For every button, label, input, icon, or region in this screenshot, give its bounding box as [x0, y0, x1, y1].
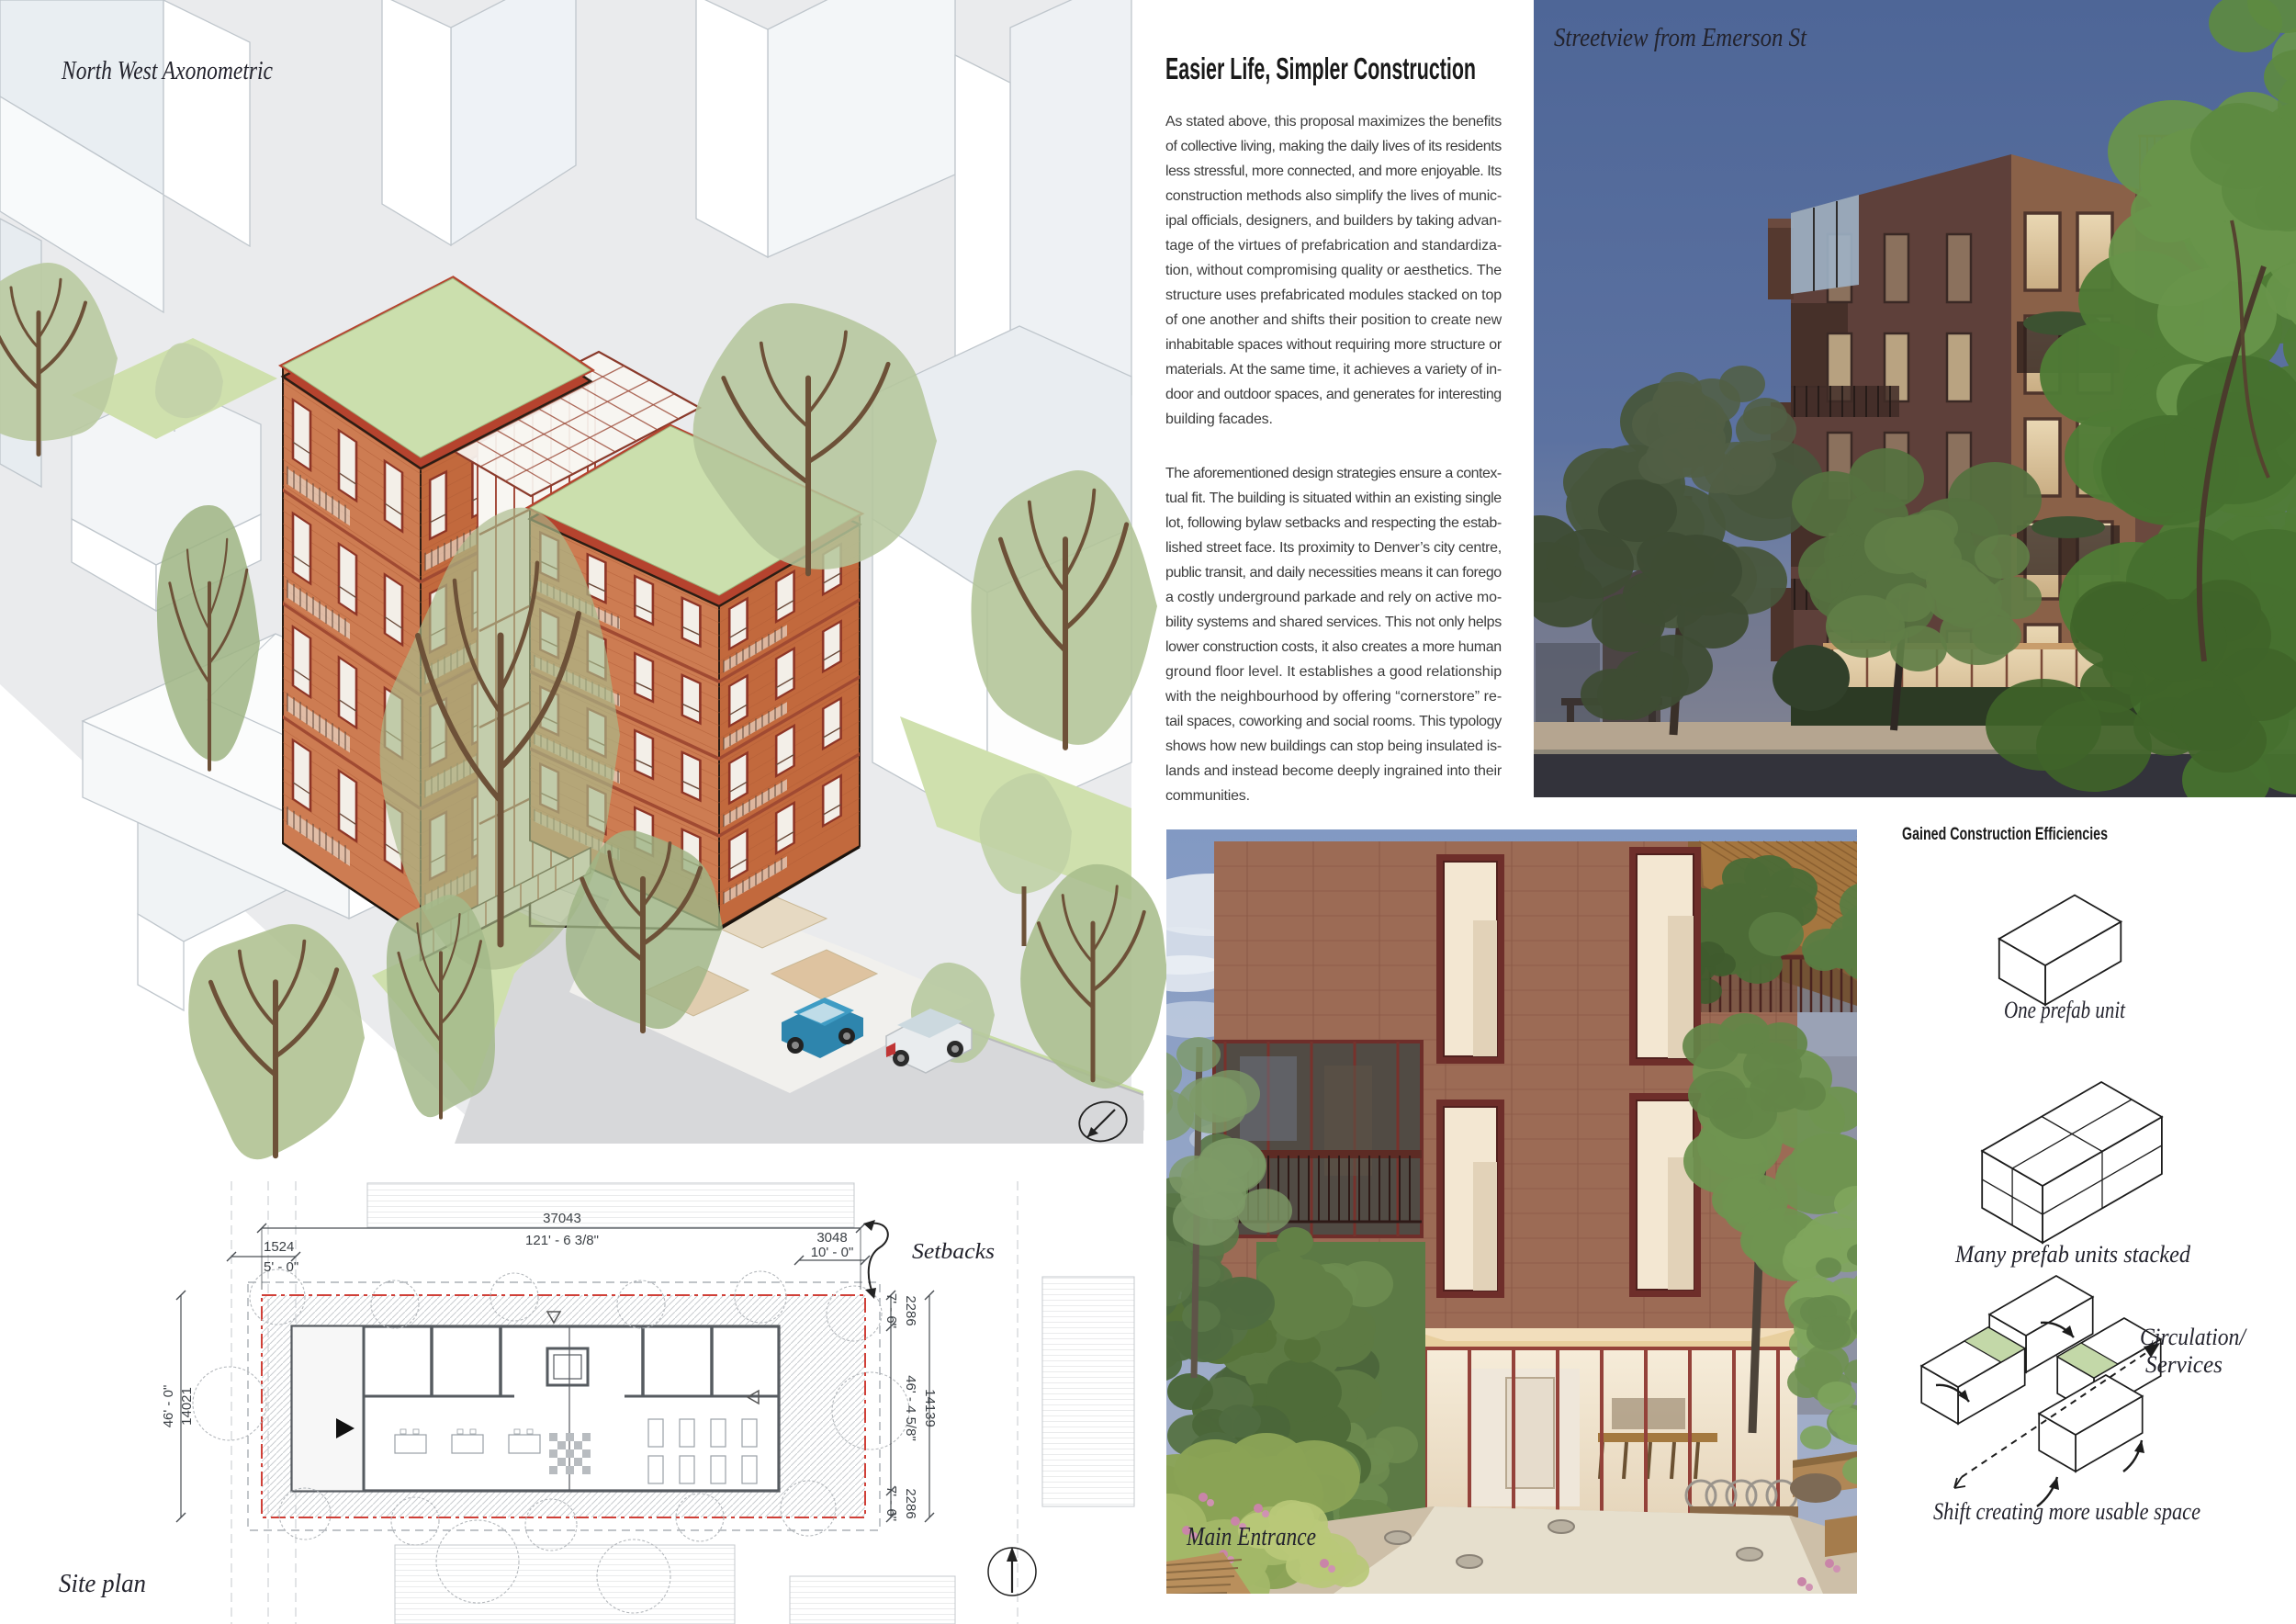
svg-text:7' - 6": 7' - 6": [884, 1293, 899, 1328]
svg-text:121' - 6 3/8": 121' - 6 3/8": [525, 1233, 599, 1248]
svg-text:a costly underground parkade a: a costly underground parkade and rely on…: [1165, 590, 1502, 605]
svg-text:communities.: communities.: [1165, 788, 1250, 804]
svg-text:Setbacks: Setbacks: [912, 1240, 995, 1264]
svg-text:10' - 0": 10' - 0": [811, 1245, 854, 1260]
svg-text:46' - 0": 46' - 0": [161, 1385, 176, 1428]
svg-text:14021: 14021: [179, 1387, 195, 1426]
svg-text:ground floor level. It establi: ground floor level. It establishes a goo…: [1165, 664, 1502, 680]
svg-text:less stressful, more connected: less stressful, more connected, and more…: [1165, 164, 1502, 179]
svg-text:structure uses prefabricated m: structure uses prefabricated modules sta…: [1165, 288, 1502, 303]
svg-text:The aforementioned design stra: The aforementioned design strategies ens…: [1165, 466, 1502, 481]
svg-text:North West Axonometric: North West Axonometric: [61, 57, 273, 85]
svg-text:lands and instead become deepl: lands and instead become deeply ingraine…: [1165, 763, 1503, 779]
svg-text:14139: 14139: [922, 1389, 938, 1427]
svg-text:7' - 6": 7' - 6": [884, 1486, 899, 1521]
svg-text:Many prefab units stacked: Many prefab units stacked: [1954, 1241, 2191, 1268]
svg-text:public transit, and daily nece: public transit, and daily necessities me…: [1165, 565, 1502, 581]
svg-text:1524: 1524: [264, 1239, 294, 1255]
svg-text:As stated above, this proposal: As stated above, this proposal maximizes…: [1165, 114, 1502, 130]
svg-text:Main Entrance: Main Entrance: [1186, 1523, 1316, 1551]
svg-text:with the neighbourhood by offe: with the neighbourhood by offering “corn…: [1165, 689, 1502, 705]
svg-text:Shift creating more usable spa: Shift creating more usable space: [1933, 1498, 2200, 1525]
svg-text:lished street face. Its proxim: lished street face. Its proximity to Den…: [1165, 540, 1502, 556]
svg-text:Easier Life, Simpler Construct: Easier Life, Simpler Construction: [1165, 51, 1476, 85]
svg-text:Streetview from Emerson St: Streetview from Emerson St: [1554, 24, 1807, 52]
svg-text:3048: 3048: [816, 1230, 847, 1246]
svg-text:Site plan: Site plan: [59, 1570, 146, 1598]
svg-text:lower construction costs, it a: lower construction costs, it also create…: [1165, 639, 1502, 655]
svg-text:46' - 4 5/8": 46' - 4 5/8": [903, 1375, 918, 1441]
svg-text:One prefab unit: One prefab unit: [2004, 997, 2126, 1023]
svg-text:ipal officials, designers, and: ipal officials, designers, and builders …: [1165, 213, 1502, 229]
svg-text:of collective living, making t: of collective living, making the daily l…: [1165, 139, 1502, 154]
svg-text:bility systems and shared serv: bility systems and shared services. This…: [1165, 615, 1502, 630]
svg-text:inhabitable spaces without req: inhabitable spaces without requiring mor…: [1165, 337, 1503, 353]
svg-text:2286: 2286: [903, 1488, 918, 1518]
svg-text:door and outdoor spaces, and g: door and outdoor spaces, and generates f…: [1165, 387, 1502, 402]
svg-text:tual fit. The building is situ: tual fit. The building is situated withi…: [1165, 491, 1502, 506]
svg-text:5' - 0": 5' - 0": [264, 1259, 298, 1275]
svg-text:materials. At the same time, i: materials. At the same time, it achieves…: [1165, 362, 1502, 378]
svg-text:tail spaces, coworking and soc: tail spaces, coworking and social rooms.…: [1165, 714, 1502, 729]
svg-text:tage of the virtues of prefabr: tage of the virtues of prefabrication an…: [1165, 238, 1502, 254]
svg-text:construction methods also simp: construction methods also simplify the l…: [1165, 188, 1502, 204]
svg-text:building facades.: building facades.: [1165, 412, 1273, 427]
svg-text:of one another and shifts thei: of one another and shifts their position…: [1165, 312, 1503, 328]
svg-text:Gained Construction Efficienci: Gained Construction Efficiencies: [1902, 825, 2108, 844]
svg-text:lot, following bylaw setbacks: lot, following bylaw setbacks and respec…: [1165, 515, 1502, 531]
svg-text:shows how new buildings can st: shows how new buildings can stop being i…: [1165, 739, 1502, 754]
svg-text:37043: 37043: [543, 1211, 581, 1226]
svg-text:2286: 2286: [903, 1295, 918, 1325]
svg-text:Circulation/: Circulation/: [2140, 1324, 2248, 1350]
svg-text:Services: Services: [2145, 1351, 2223, 1378]
svg-text:tion, without compromising qua: tion, without compromising quality or ae…: [1165, 263, 1502, 278]
